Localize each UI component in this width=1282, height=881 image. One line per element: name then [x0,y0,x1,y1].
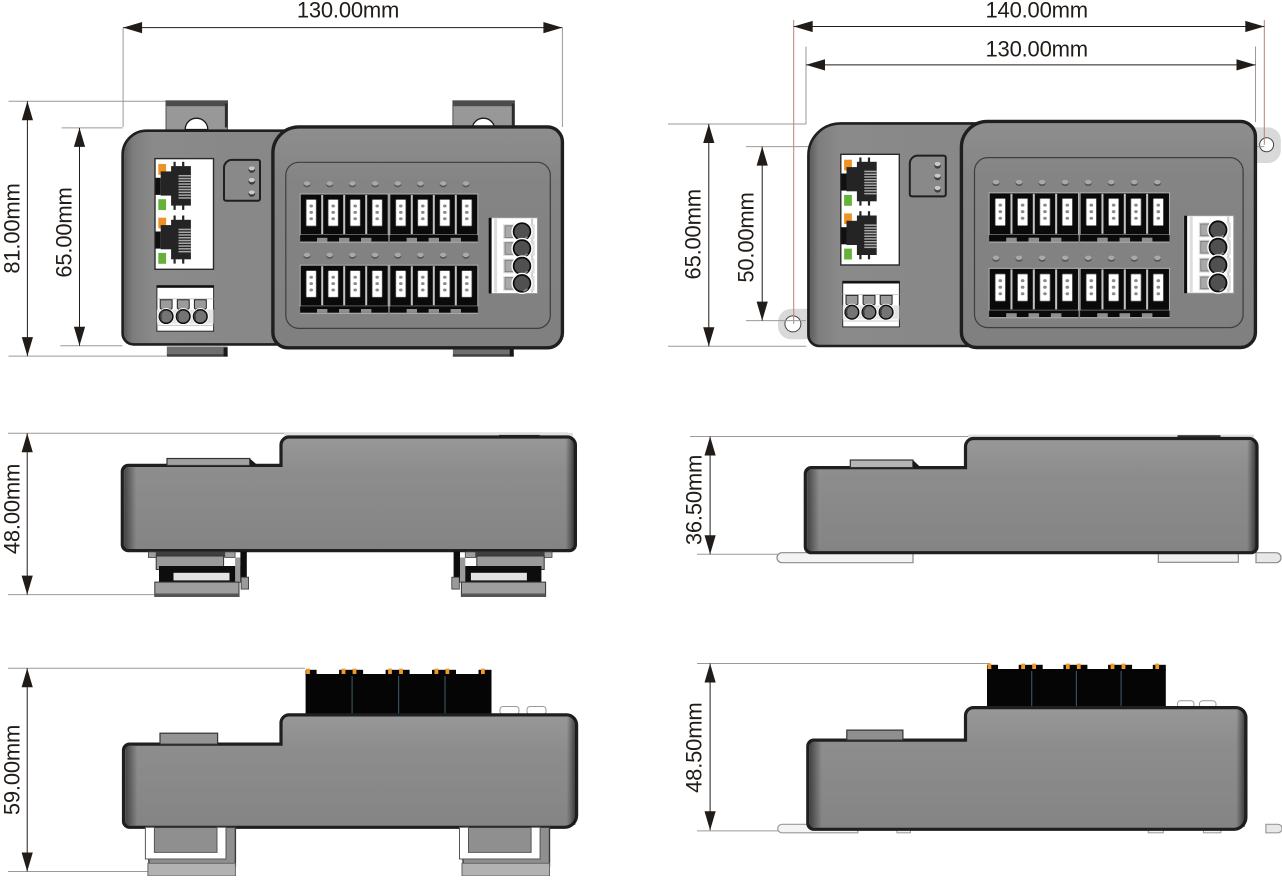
svg-text:81.00mm: 81.00mm [0,183,25,273]
svg-text:48.50mm: 48.50mm [682,703,707,793]
svg-text:65.00mm: 65.00mm [52,187,77,277]
svg-text:48.00mm: 48.00mm [0,464,25,554]
svg-text:36.50mm: 36.50mm [682,455,707,545]
svg-text:130.00mm: 130.00mm [297,0,399,23]
svg-text:65.00mm: 65.00mm [681,189,706,279]
svg-text:140.00mm: 140.00mm [986,0,1088,23]
svg-text:59.00mm: 59.00mm [0,725,25,815]
svg-text:50.00mm: 50.00mm [734,192,759,282]
svg-text:130.00mm: 130.00mm [986,37,1088,62]
